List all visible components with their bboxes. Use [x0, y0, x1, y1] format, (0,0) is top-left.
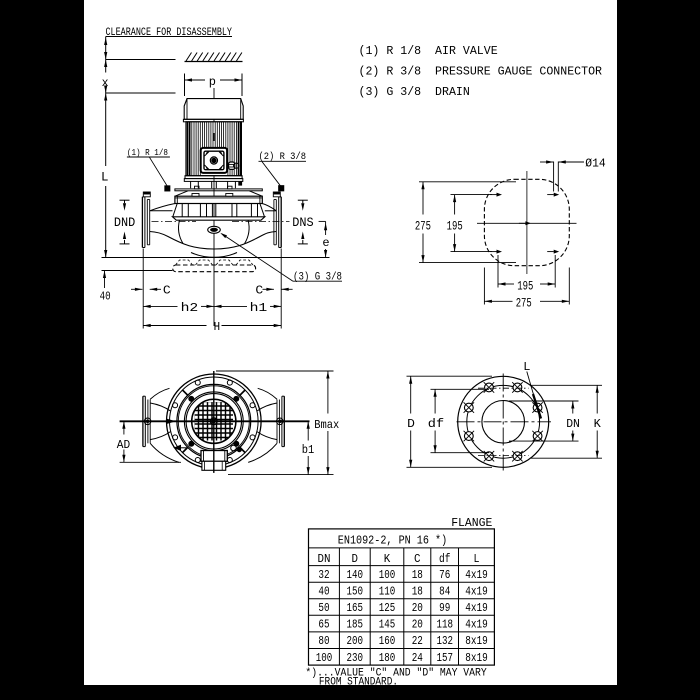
- svg-text:x: x: [102, 77, 109, 90]
- svg-text:D: D: [407, 417, 415, 431]
- svg-text:65: 65: [318, 619, 329, 632]
- svg-text:118: 118: [436, 619, 453, 632]
- svg-text:18: 18: [412, 586, 423, 599]
- svg-text:(1) R 1/8: (1) R 1/8: [127, 147, 168, 158]
- svg-text:80: 80: [318, 635, 329, 648]
- svg-text:275: 275: [415, 220, 431, 234]
- svg-text:125: 125: [379, 602, 396, 615]
- svg-text:150: 150: [347, 586, 364, 599]
- svg-text:p: p: [209, 75, 216, 89]
- svg-text:185: 185: [347, 619, 364, 632]
- svg-text:DNS: DNS: [292, 216, 313, 230]
- svg-text:df: df: [428, 417, 444, 431]
- svg-text:h1: h1: [250, 301, 268, 315]
- svg-text:110: 110: [379, 586, 396, 599]
- svg-text:AD: AD: [117, 438, 130, 452]
- svg-text:165: 165: [347, 602, 364, 615]
- svg-text:DND: DND: [114, 216, 135, 230]
- svg-text:(3) G 3/8 DRAIN: (3) G 3/8 DRAIN: [359, 86, 470, 99]
- svg-text:195: 195: [447, 220, 463, 234]
- svg-text:20: 20: [412, 619, 423, 632]
- svg-text:20: 20: [412, 602, 423, 615]
- svg-text:145: 145: [379, 619, 396, 632]
- svg-text:100: 100: [316, 652, 333, 665]
- svg-text:157: 157: [436, 652, 453, 665]
- svg-text:K: K: [594, 417, 602, 431]
- svg-text:32: 32: [318, 569, 329, 582]
- svg-text:195: 195: [517, 279, 533, 293]
- svg-text:FLANGE: FLANGE: [451, 516, 492, 530]
- svg-text:230: 230: [347, 652, 364, 665]
- svg-text:22: 22: [412, 635, 423, 648]
- svg-text:4x19: 4x19: [465, 619, 488, 632]
- svg-text:df: df: [439, 553, 450, 566]
- svg-text:e: e: [322, 236, 329, 250]
- svg-text:275: 275: [516, 297, 532, 311]
- svg-text:K: K: [384, 553, 391, 566]
- svg-text:C: C: [255, 283, 263, 297]
- svg-text:(2) R 3/8 PRESSURE GAUGE CONN: (2) R 3/8 PRESSURE GAUGE CONNECTOR: [359, 66, 603, 79]
- svg-text:EN1092-2, PN 16 *): EN1092-2, PN 16 *): [338, 533, 447, 547]
- svg-text:180: 180: [379, 652, 396, 665]
- svg-text:160: 160: [379, 635, 396, 648]
- svg-text:40: 40: [100, 290, 111, 304]
- svg-text:DN: DN: [566, 417, 580, 431]
- svg-text:H: H: [214, 320, 221, 334]
- svg-text:100: 100: [379, 569, 396, 582]
- svg-text:4x19: 4x19: [465, 602, 488, 615]
- svg-text:(1) R 1/8 AIR VALVE: (1) R 1/8 AIR VALVE: [359, 45, 498, 58]
- svg-text:L: L: [101, 171, 109, 185]
- svg-text:18: 18: [412, 569, 423, 582]
- svg-text:50: 50: [318, 602, 329, 615]
- svg-text:84: 84: [439, 586, 450, 599]
- svg-text:b1: b1: [302, 443, 315, 457]
- svg-text:DN: DN: [318, 553, 331, 566]
- svg-text:4x19: 4x19: [465, 586, 488, 599]
- svg-text:99: 99: [439, 602, 450, 615]
- svg-text:40: 40: [318, 586, 329, 599]
- svg-text:h2: h2: [181, 301, 199, 315]
- svg-text:C: C: [163, 283, 171, 297]
- svg-text:200: 200: [347, 635, 364, 648]
- svg-text:24: 24: [412, 652, 423, 665]
- svg-text:Bmax: Bmax: [314, 418, 339, 432]
- svg-text:Ø14: Ø14: [585, 157, 605, 171]
- svg-text:CLEARANCE FOR DISASSEMBLY: CLEARANCE FOR DISASSEMBLY: [106, 27, 233, 39]
- svg-text:132: 132: [436, 635, 453, 648]
- svg-text:C: C: [414, 553, 421, 566]
- svg-text:4x19: 4x19: [465, 569, 488, 582]
- svg-text:76: 76: [439, 569, 450, 582]
- svg-text:140: 140: [347, 569, 364, 582]
- svg-text:FROM STANDARD.: FROM STANDARD.: [319, 677, 398, 689]
- svg-text:L: L: [474, 553, 480, 566]
- svg-text:8x19: 8x19: [465, 635, 488, 648]
- svg-text:8x19: 8x19: [465, 652, 488, 665]
- svg-text:D: D: [352, 553, 359, 566]
